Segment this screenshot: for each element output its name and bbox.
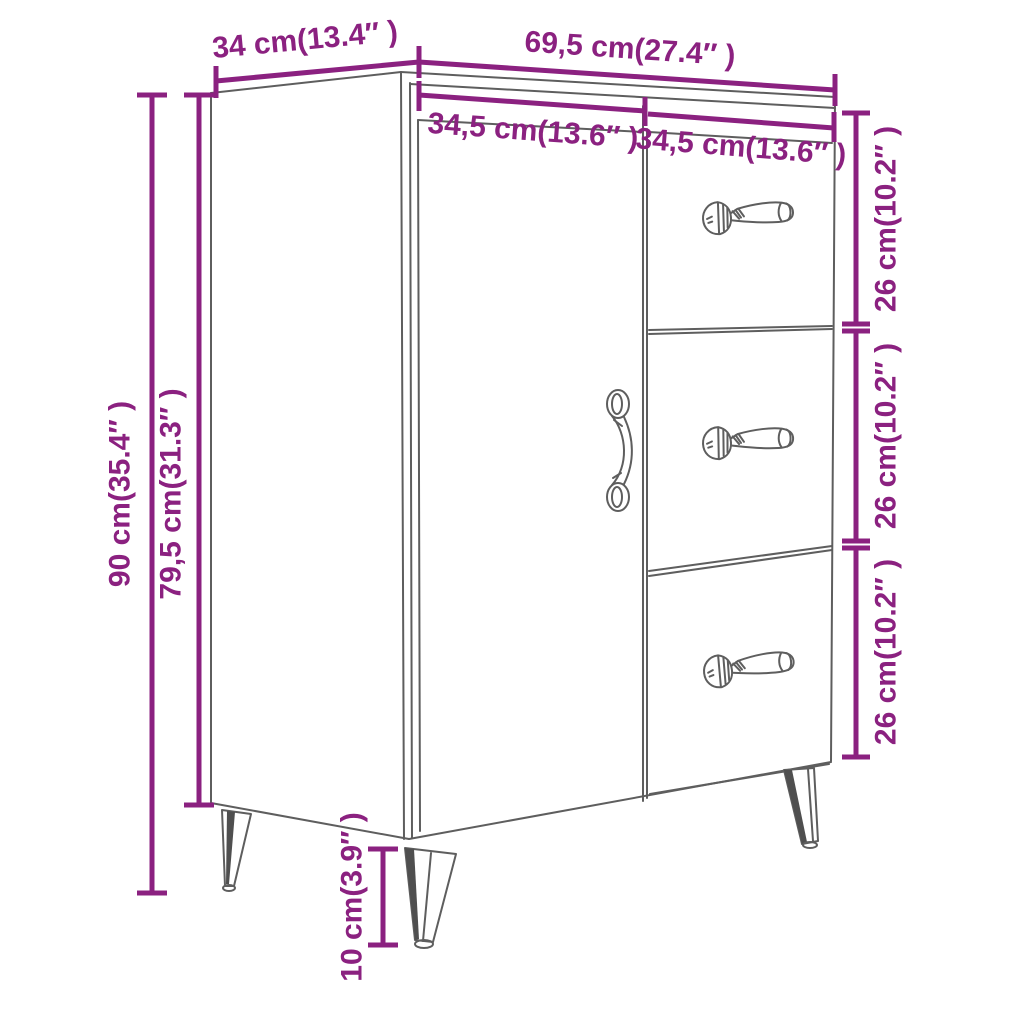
back-left-leg [222, 810, 251, 891]
dim-drawer3-height-label: 26 cm(10.2″ ) [870, 559, 903, 745]
dim-body-height: 79,5 cm(31.3″ ) [155, 95, 215, 805]
drawer-2 [649, 329, 832, 571]
dim-leg-height-label: 10 cm(3.9″ ) [336, 812, 369, 981]
door-panel [418, 120, 643, 831]
dim-depth-label: 34 cm(13.4″ ) [211, 15, 399, 65]
front-left-leg [405, 848, 456, 948]
dim-drawer1-height-label: 26 cm(10.2″ ) [870, 126, 903, 312]
drawer-stack [649, 132, 832, 794]
dim-width-label: 69,5 cm(27.4″ ) [524, 25, 737, 72]
cabinet-drawing [211, 72, 835, 948]
dim-body-height-label: 79,5 cm(31.3″ ) [155, 388, 188, 599]
dim-total-height-label: 90 cm(35.4″ ) [104, 401, 137, 587]
dim-drawer3-height: 26 cm(10.2″ ) [842, 548, 903, 757]
dim-drawer1-height: 26 cm(10.2″ ) [842, 113, 903, 324]
side-top-edge [211, 72, 401, 93]
dim-drawer2-height: 26 cm(10.2″ ) [842, 331, 903, 541]
drawer-3 [649, 550, 832, 794]
front-left-edge-inner [410, 83, 412, 838]
front-left-edge [401, 72, 404, 839]
front-right-leg [784, 768, 818, 848]
cabinet-door [418, 106, 647, 831]
dim-depth: 34 cm(13.4″ ) [211, 15, 419, 98]
dim-leg-height: 10 cm(3.9″ ) [336, 812, 399, 981]
dim-drawer2-height-label: 26 cm(10.2″ ) [870, 343, 903, 529]
furniture-dimension-diagram: 34 cm(13.4″ ) 69,5 cm(27.4″ ) 34,5 cm(13… [0, 0, 1024, 1024]
